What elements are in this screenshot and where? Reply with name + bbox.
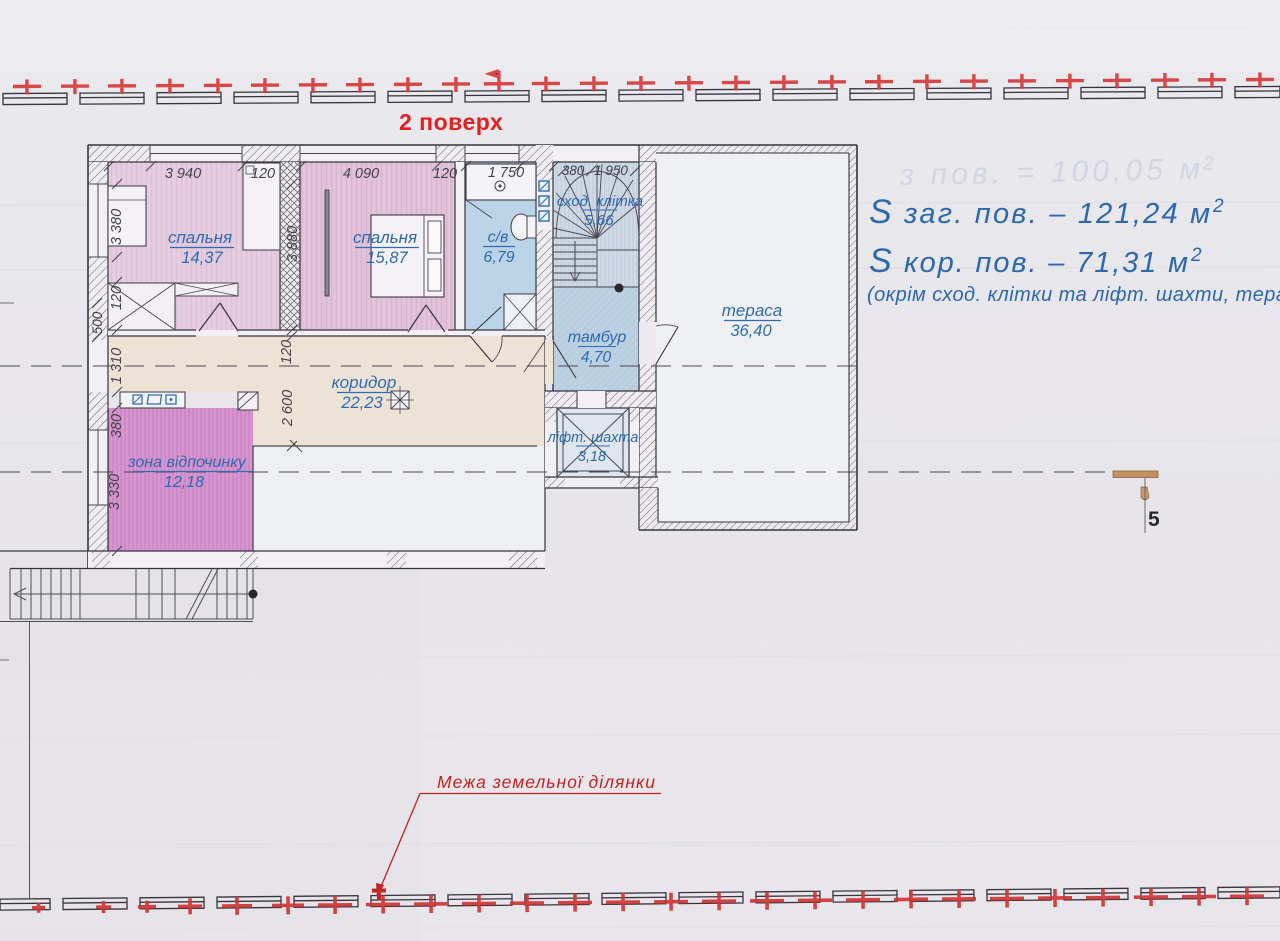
svg-text:5,66: 5,66 (584, 212, 614, 229)
svg-text:380: 380 (109, 414, 125, 438)
svg-text:6,79: 6,79 (483, 249, 514, 266)
svg-text:2 600: 2 600 (280, 390, 296, 427)
svg-text:36,40: 36,40 (730, 322, 772, 340)
svg-text:3 880: 3 880 (285, 226, 301, 262)
svg-text:3 940: 3 940 (165, 166, 201, 182)
svg-text:тамбур: тамбур (568, 329, 627, 346)
svg-text:с/в: с/в (488, 229, 509, 246)
svg-text:3 330: 3 330 (107, 474, 123, 510)
svg-text:12,18: 12,18 (164, 474, 204, 491)
svg-text:1 750: 1 750 (488, 165, 524, 181)
svg-text:(окрім сход. клітки та ліфт. ш: (окрім сход. клітки та ліфт. шахти, тера (867, 284, 1280, 306)
svg-text:2 поверх: 2 поверх (399, 109, 503, 135)
svg-text:тераса: тераса (722, 301, 782, 320)
svg-text:3,18: 3,18 (578, 449, 606, 465)
svg-text:кор. пов. – 71,31 м: кор. пов. – 71,31 м (904, 247, 1188, 279)
svg-text:Межа земельної ділянки: Межа земельної ділянки (437, 772, 656, 792)
svg-text:3 380: 3 380 (109, 209, 125, 245)
svg-text:S: S (869, 242, 892, 280)
svg-text:зона відпочинку: зона відпочинку (127, 454, 247, 471)
svg-text:1 310: 1 310 (109, 348, 125, 384)
svg-text:коридор: коридор (332, 373, 397, 392)
svg-text:заг. пов. – 121,24 м: заг. пов. – 121,24 м (903, 198, 1210, 230)
svg-text:2: 2 (1190, 245, 1202, 266)
svg-text:22,23: 22,23 (340, 394, 383, 412)
svg-text:ліфт. шахта: ліфт. шахта (547, 430, 639, 446)
svg-text:500: 500 (90, 311, 105, 334)
svg-text:120: 120 (109, 286, 125, 310)
svg-text:5: 5 (1148, 508, 1160, 531)
svg-text:4,70: 4,70 (581, 349, 612, 366)
svg-text:120: 120 (433, 166, 457, 182)
svg-text:120: 120 (251, 166, 275, 182)
svg-text:380: 380 (562, 163, 585, 178)
svg-text:120: 120 (279, 340, 295, 364)
svg-text:сход. клітка: сход. клітка (557, 193, 643, 210)
svg-text:1 950: 1 950 (594, 163, 628, 178)
svg-text:14,37: 14,37 (181, 249, 223, 267)
svg-text:спальня: спальня (168, 228, 232, 247)
svg-text:спальня: спальня (353, 228, 417, 247)
svg-text:15,87: 15,87 (366, 249, 408, 267)
svg-text:4 090: 4 090 (343, 166, 379, 182)
svg-text:S: S (869, 193, 892, 231)
svg-text:2: 2 (1212, 196, 1224, 217)
svg-text:2: 2 (1202, 154, 1214, 175)
